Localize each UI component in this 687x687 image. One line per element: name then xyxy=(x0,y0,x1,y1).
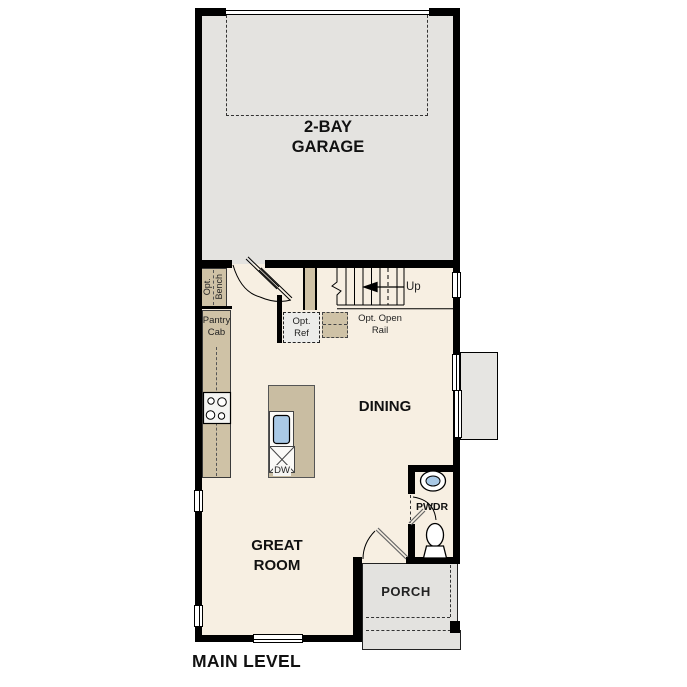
garage-entry-door-icon xyxy=(233,257,292,302)
pantry-cab-label: Pantry Cab xyxy=(201,315,232,339)
main-level-title: MAIN LEVEL xyxy=(192,651,301,672)
plan-linework xyxy=(0,0,687,687)
stairs-up-arrow-icon xyxy=(364,283,404,292)
kitchen-sink-icon xyxy=(270,412,294,447)
stairs-icon xyxy=(332,268,453,309)
opt-bench-label: Opt. Bench xyxy=(201,266,227,308)
great-room-label: GREAT ROOM xyxy=(227,536,327,577)
garage-label: 2-BAY GARAGE xyxy=(267,118,389,158)
dining-label: DINING xyxy=(344,398,426,416)
powder-sink-icon xyxy=(421,471,446,491)
stove-icon xyxy=(204,393,231,424)
toilet-icon xyxy=(424,524,447,559)
dishwasher-label: DW xyxy=(269,453,295,477)
front-door-icon xyxy=(363,528,408,559)
opt-open-rail-label: Opt. Open Rail xyxy=(347,313,413,337)
porch-label: PORCH xyxy=(375,584,437,600)
powder-label: PWDR xyxy=(410,501,454,514)
opt-ref-label: Opt. Ref xyxy=(283,316,320,340)
up-label: Up xyxy=(406,280,421,294)
floorplan-canvas: 2-BAY GARAGE DINING GREAT ROOM PORCH PWD… xyxy=(0,0,687,687)
